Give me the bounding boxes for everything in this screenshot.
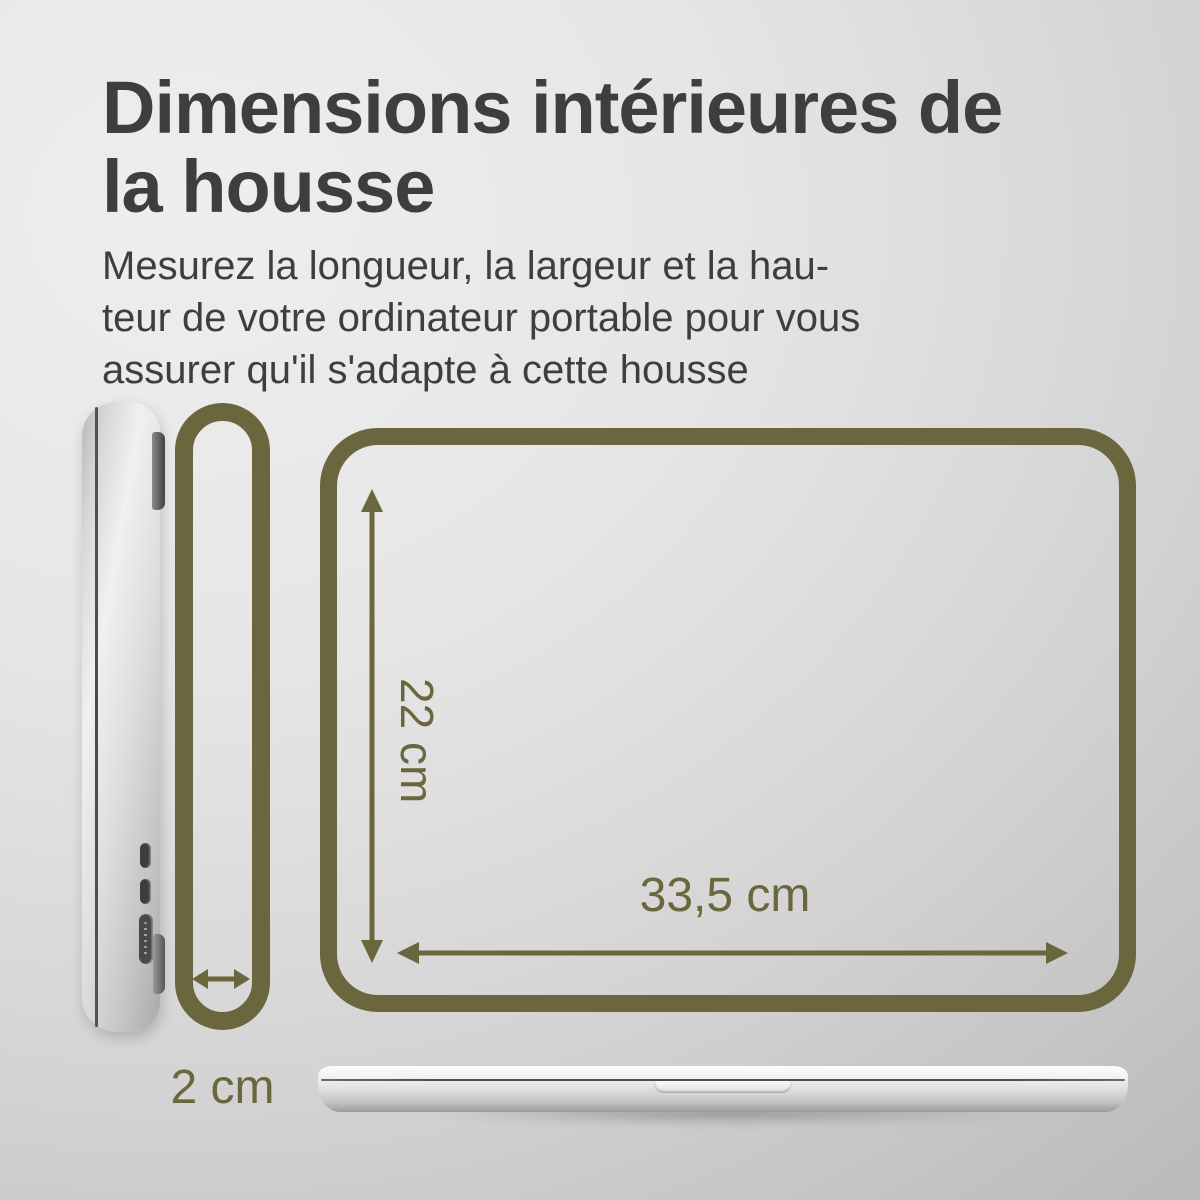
usb-c-port (140, 843, 151, 868)
laptop-thumb-notch (654, 1081, 792, 1093)
depth-label: 2 cm (150, 1060, 295, 1115)
horizontal-double-arrow-icon (192, 965, 250, 993)
page-subtitle: Mesurez la longueur, la largeur et la ha… (102, 240, 962, 396)
thickness-outline (175, 403, 270, 1030)
laptop-front-view-image (318, 1066, 1128, 1112)
page-title: Dimensions intérieures de la housse (102, 68, 1062, 226)
laptop-lid-seam (95, 407, 98, 1027)
width-label: 33,5 cm (560, 868, 890, 923)
usb-c-port (140, 879, 151, 904)
magsafe-port (139, 914, 153, 964)
laptop-side-view-image (82, 402, 160, 1032)
height-label: 22 cm (393, 678, 441, 798)
horizontal-double-arrow-icon (397, 939, 1068, 967)
laptop-hinge (152, 432, 165, 510)
laptop-foot (153, 934, 165, 994)
sleeve-dimensions-infographic: Dimensions intérieures de la housse Mesu… (0, 0, 1200, 1200)
vertical-double-arrow-icon (357, 489, 387, 963)
